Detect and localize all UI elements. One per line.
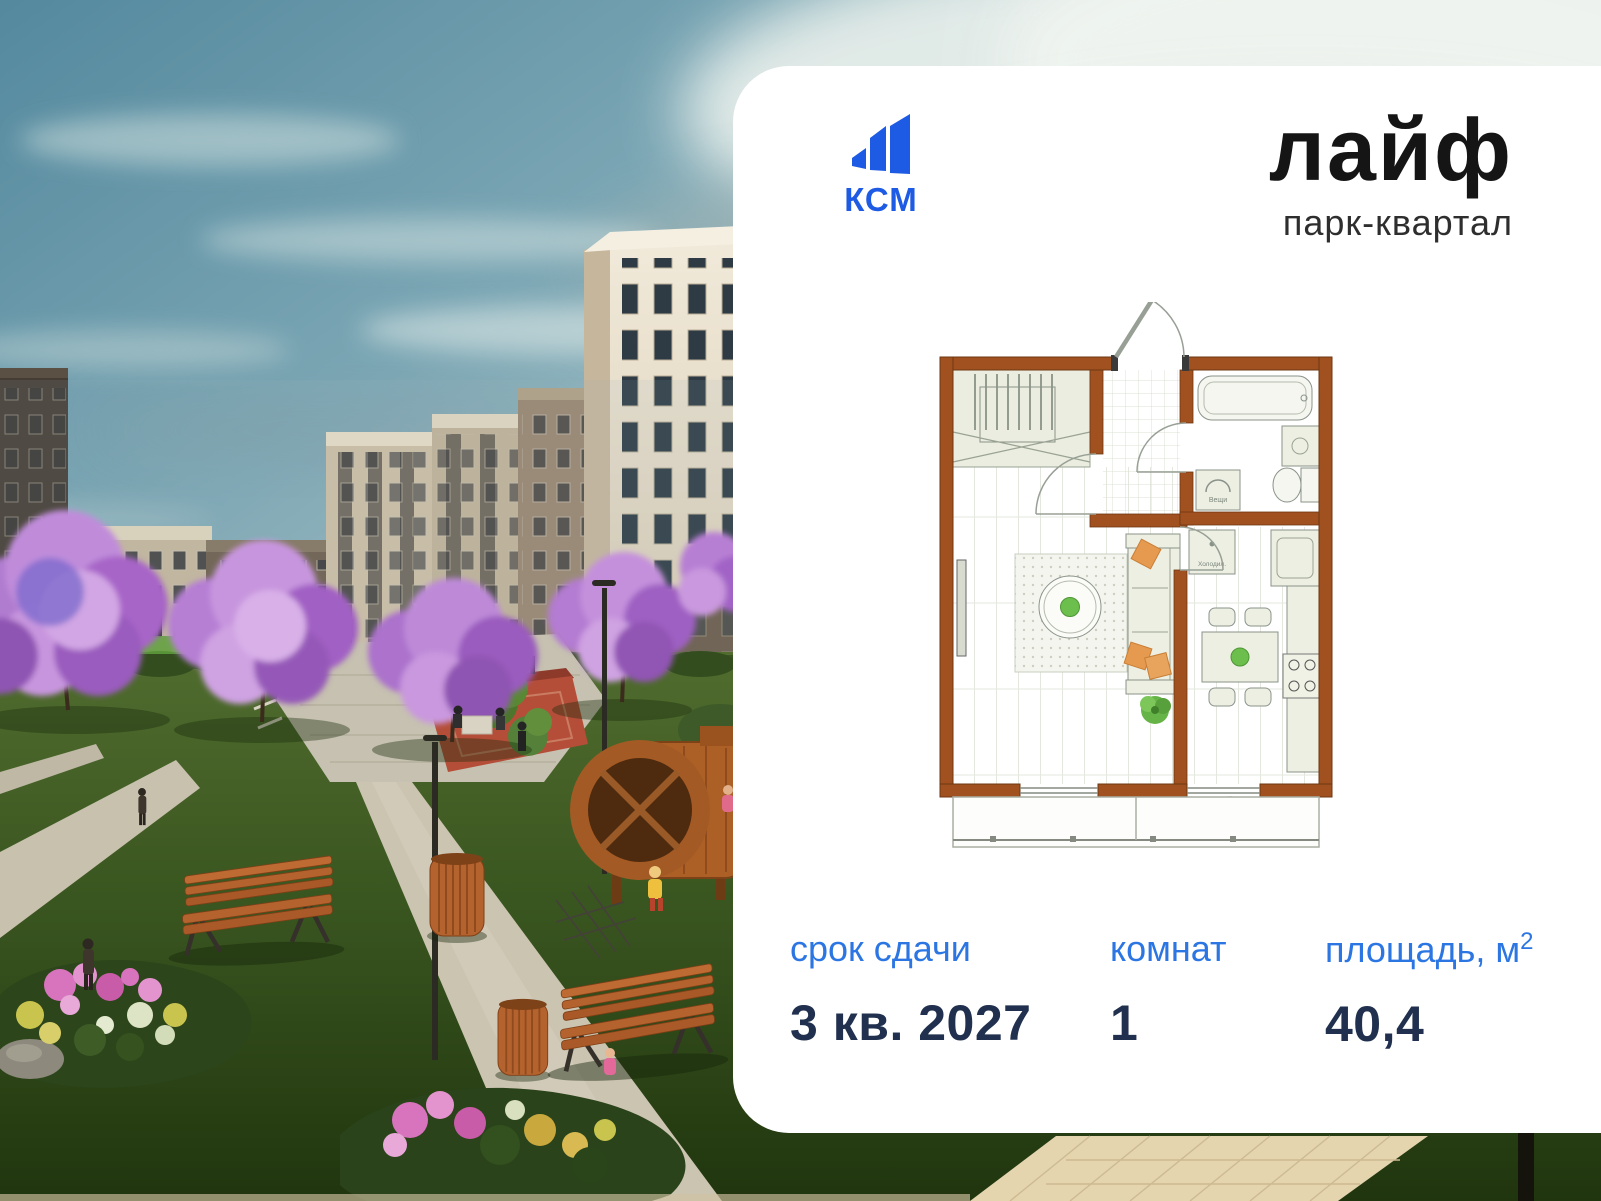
wardrobe: [953, 370, 1090, 467]
spec-area-value: 40,4: [1325, 995, 1533, 1053]
spec-area-label: площадь, м2: [1325, 928, 1533, 971]
spec-area: площадь, м2 40,4: [1325, 928, 1533, 1053]
ksm-logo-icon: [850, 112, 912, 176]
lamp-post-base: [1518, 1130, 1534, 1201]
toilet: [1273, 468, 1301, 502]
specs-row: срок сдачи 3 кв. 2027 комнат 1 площадь, …: [790, 928, 1533, 1053]
spec-deadline-value: 3 кв. 2027: [790, 994, 1110, 1052]
tv: [957, 560, 966, 656]
project-brand: лайф парк-квартал: [1033, 106, 1513, 244]
listing-card[interactable]: КСМ лайф парк-квартал: [733, 66, 1601, 1133]
fridge: Холодил.: [1189, 530, 1235, 574]
sink: [1282, 426, 1319, 466]
entrance-door: [1111, 302, 1189, 371]
project-subtitle: парк-квартал: [1033, 202, 1513, 244]
sofa: [1124, 534, 1180, 694]
listing-banner: КСМ лайф парк-квартал: [0, 0, 1601, 1201]
spec-rooms: комнат 1: [1110, 928, 1325, 1053]
balcony: [953, 797, 1319, 847]
washing-machine: Вещи: [1196, 470, 1240, 510]
project-title: лайф: [1033, 106, 1513, 194]
trash-bin: [495, 999, 550, 1082]
child-figure-pink: [604, 1048, 616, 1075]
spec-deadline: срок сдачи 3 кв. 2027: [790, 928, 1110, 1053]
developer-logo: КСМ: [841, 112, 921, 219]
floor-plan: Вещи Холодил.: [930, 302, 1340, 877]
spec-rooms-label: комнат: [1110, 928, 1325, 970]
trash-bin: [427, 853, 487, 943]
ksm-logo-text: КСМ: [841, 181, 921, 219]
washer-label: Вещи: [1209, 497, 1227, 504]
hallway-floor: [1103, 370, 1180, 527]
spec-deadline-label: срок сдачи: [790, 928, 1110, 970]
bathtub: [1198, 376, 1312, 420]
spec-rooms-value: 1: [1110, 994, 1325, 1052]
toilet-tank: [1301, 468, 1319, 502]
stove: [1283, 654, 1319, 698]
